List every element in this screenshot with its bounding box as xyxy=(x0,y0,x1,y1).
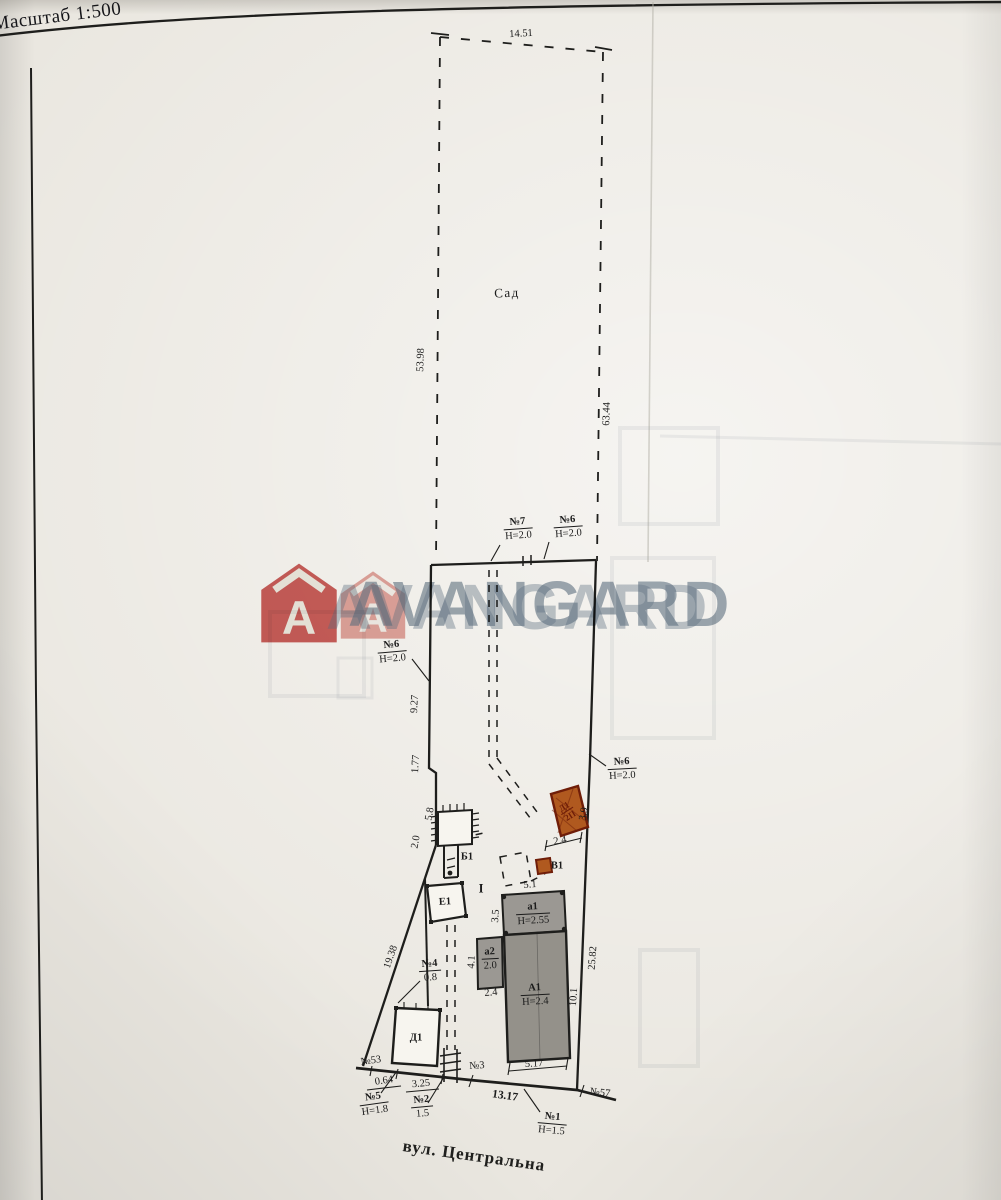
plan-stacked-label: №6Н=2.0 xyxy=(607,755,637,784)
reverse-side-bleed-ghosts xyxy=(270,428,1001,1066)
plan-label: 63.44 xyxy=(601,402,613,426)
plan-label: 2.4 xyxy=(484,987,498,999)
plan-label: 14.51 xyxy=(509,28,533,40)
stacked-label-bottom: 2.0 xyxy=(482,959,499,973)
plan-label: 1.77 xyxy=(410,755,422,774)
plan-label: Сад xyxy=(494,285,520,302)
plan-label: 5.1 xyxy=(523,879,537,891)
plan-label: №57 xyxy=(589,1086,611,1099)
plan-label: 5.8 xyxy=(423,807,436,822)
plan-label: 3.5 xyxy=(490,909,502,923)
stacked-label-bottom: Н=2.0 xyxy=(378,651,408,667)
plan-label: 5.17 xyxy=(525,1058,544,1070)
stacked-label-bottom: Н=2.0 xyxy=(504,528,533,543)
stacked-label-bottom: Н=2.55 xyxy=(516,914,551,929)
stacked-label-bottom: Н=2.0 xyxy=(608,769,637,784)
stacked-label-bottom: Н=2.0 xyxy=(554,526,583,541)
plan-stacked-label: №7Н=2.0 xyxy=(503,514,533,543)
stacked-label-top: №4 xyxy=(418,957,441,973)
plan-stacked-label: №6Н=2.0 xyxy=(377,637,408,667)
plan-stacked-label: №40.8 xyxy=(418,957,442,986)
plan-stacked-label: №5Н=1.8 xyxy=(358,1089,390,1120)
plan-label: I xyxy=(479,882,484,897)
plan-stacked-label: А1Н=2.4 xyxy=(520,981,550,1010)
plan-label: 9.27 xyxy=(409,695,421,714)
page-frame-lines xyxy=(0,2,1001,1200)
plan-label: 2.4 xyxy=(553,834,568,847)
plan-label: Б1 xyxy=(461,852,473,863)
plan-stacked-label: №21.5 xyxy=(410,1092,434,1121)
scanned-site-plan-photo: { "page": { "scale_label": "Масштаб 1:50… xyxy=(0,0,1001,1200)
plan-label: Д1 xyxy=(410,1033,422,1044)
plan-label: 3.25 xyxy=(411,1078,430,1091)
stacked-label-bottom: 0.8 xyxy=(419,971,442,986)
plan-label: В1 xyxy=(551,861,563,872)
plan-label: 2.0 xyxy=(409,835,422,850)
plan-label: №3 xyxy=(469,1060,485,1072)
plan-stacked-label: №6Н=2.0 xyxy=(553,512,583,541)
plan-label: Е1 xyxy=(439,896,452,908)
plan-stacked-label: а1Н=2.55 xyxy=(515,900,550,929)
stacked-label-bottom: Н=1.5 xyxy=(537,1123,567,1139)
plan-label: 4.1 xyxy=(466,955,478,969)
stacked-label-top: а2 xyxy=(481,945,498,960)
plan-label: 10.1 xyxy=(568,987,580,1006)
plan-stacked-label: №1Н=1.5 xyxy=(537,1109,568,1139)
plan-label: 53.98 xyxy=(415,348,427,372)
plan-label: 25.82 xyxy=(587,946,600,970)
building-v1-red-square xyxy=(536,858,552,874)
stacked-label-top: А1 xyxy=(520,981,549,997)
stacked-label-bottom: 1.5 xyxy=(411,1107,434,1122)
site-plan-drawing xyxy=(0,0,1001,1200)
stacked-label-top: №6 xyxy=(607,755,636,771)
stacked-label-bottom: Н=2.4 xyxy=(521,995,550,1010)
plan-stacked-label: а22.0 xyxy=(481,945,499,973)
building-b1-shed xyxy=(431,803,479,878)
plan-label: 3.9 xyxy=(577,807,590,822)
